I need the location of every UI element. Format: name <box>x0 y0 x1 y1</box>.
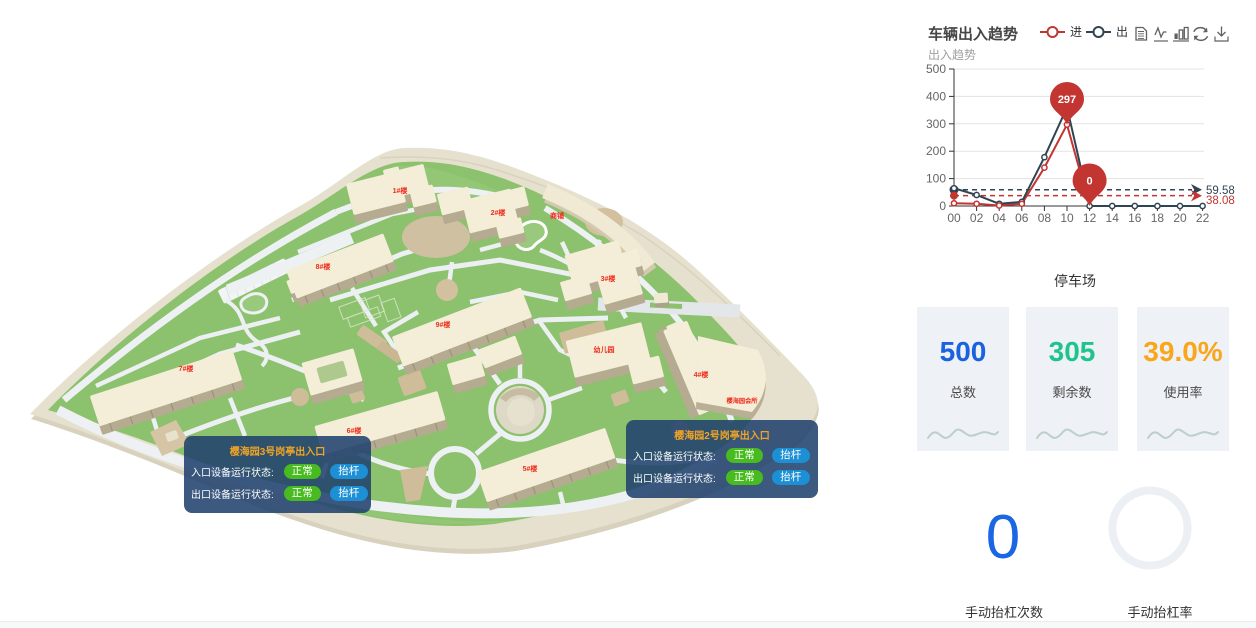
svg-text:500: 500 <box>926 62 946 76</box>
svg-text:车辆出入趋势: 车辆出入趋势 <box>928 25 1018 43</box>
svg-text:进: 进 <box>1070 25 1082 39</box>
svg-text:3#楼: 3#楼 <box>601 274 616 283</box>
svg-text:0: 0 <box>1087 176 1093 188</box>
svg-text:出: 出 <box>1116 25 1128 39</box>
svg-text:8#楼: 8#楼 <box>316 262 331 271</box>
svg-text:1#楼: 1#楼 <box>393 186 408 195</box>
svg-text:18: 18 <box>1151 211 1165 225</box>
svg-text:14: 14 <box>1106 211 1120 225</box>
svg-text:0: 0 <box>939 199 946 213</box>
svg-text:100: 100 <box>926 172 946 186</box>
svg-text:400: 400 <box>926 89 946 103</box>
svg-text:300: 300 <box>926 117 946 131</box>
svg-text:12: 12 <box>1083 211 1097 225</box>
svg-text:04: 04 <box>993 211 1007 225</box>
svg-text:200: 200 <box>926 144 946 158</box>
svg-text:02: 02 <box>970 211 984 225</box>
svg-text:00: 00 <box>947 211 961 225</box>
svg-text:10: 10 <box>1060 211 1074 225</box>
svg-text:16: 16 <box>1128 211 1142 225</box>
svg-text:2#楼: 2#楼 <box>491 208 506 217</box>
svg-text:22: 22 <box>1196 211 1210 225</box>
svg-text:7#楼: 7#楼 <box>179 364 194 373</box>
svg-text:出入趋势: 出入趋势 <box>928 48 976 62</box>
svg-text:樱海园会所: 樱海园会所 <box>727 397 759 405</box>
svg-text:297: 297 <box>1058 94 1076 106</box>
svg-text:4#楼: 4#楼 <box>694 370 709 379</box>
svg-text:08: 08 <box>1038 211 1052 225</box>
svg-text:06: 06 <box>1015 211 1029 225</box>
svg-text:38.08: 38.08 <box>1206 195 1235 207</box>
svg-text:20: 20 <box>1173 211 1187 225</box>
svg-text:6#楼: 6#楼 <box>347 426 362 435</box>
svg-text:5#楼: 5#楼 <box>523 464 538 473</box>
svg-text:幼儿园: 幼儿园 <box>594 345 615 354</box>
svg-text:9#楼: 9#楼 <box>436 320 451 329</box>
svg-text:商铺: 商铺 <box>550 211 564 220</box>
